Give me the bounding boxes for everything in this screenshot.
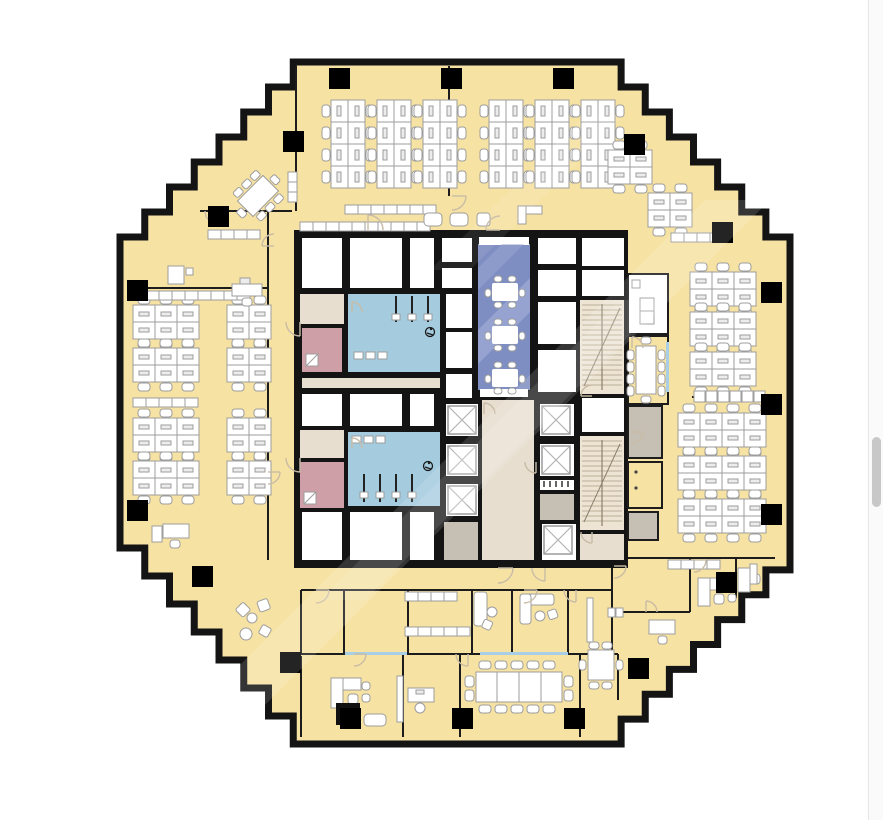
chair xyxy=(242,298,252,306)
armchair xyxy=(424,213,442,226)
monitor xyxy=(233,328,243,332)
conference-table xyxy=(492,369,518,387)
chair xyxy=(695,343,707,351)
chair xyxy=(348,694,358,704)
chair xyxy=(495,661,507,669)
chair xyxy=(564,676,573,687)
cabinet xyxy=(172,398,185,407)
cabinet xyxy=(300,222,313,231)
monitor xyxy=(161,425,171,429)
monitor xyxy=(255,355,265,359)
chair xyxy=(739,343,751,351)
monitor xyxy=(696,279,706,283)
chair xyxy=(683,490,695,498)
cabinet xyxy=(384,205,397,214)
monitor xyxy=(355,150,359,160)
chair xyxy=(232,383,244,391)
chair xyxy=(182,496,194,504)
round-table xyxy=(535,611,545,621)
chair xyxy=(526,105,534,117)
monitor xyxy=(139,328,149,332)
chair xyxy=(254,496,266,504)
structural-column xyxy=(452,708,473,729)
monitor xyxy=(513,150,517,160)
core-room xyxy=(538,270,576,296)
monitor xyxy=(416,690,424,694)
monitor xyxy=(750,420,760,424)
monitor xyxy=(696,295,706,299)
monitor xyxy=(255,312,265,316)
chair xyxy=(727,534,739,542)
monitor xyxy=(233,484,243,488)
structural-column xyxy=(441,68,462,89)
monitor xyxy=(728,522,738,526)
chair xyxy=(322,149,330,161)
scrollbar-track[interactable] xyxy=(868,0,883,820)
monitor xyxy=(696,375,706,379)
round-table xyxy=(487,607,497,617)
monitor xyxy=(401,150,405,160)
chair xyxy=(749,534,761,542)
monitor xyxy=(401,106,405,116)
core-room xyxy=(582,398,624,432)
toilet xyxy=(360,492,368,498)
monitor xyxy=(401,128,405,138)
cabinet xyxy=(221,230,234,239)
monitor xyxy=(706,506,716,510)
toilet xyxy=(376,492,384,498)
monitor xyxy=(559,106,563,116)
chair xyxy=(232,496,244,504)
cabinet xyxy=(198,291,211,300)
cabinet xyxy=(159,398,172,407)
core-room xyxy=(410,238,434,288)
core-corridor xyxy=(302,378,440,388)
chair xyxy=(480,171,488,183)
chair xyxy=(653,228,665,236)
monitor xyxy=(183,371,193,375)
monitor xyxy=(684,522,694,526)
core-room xyxy=(442,268,472,288)
monitor xyxy=(233,468,243,472)
accessible-icon xyxy=(430,328,432,330)
monitor xyxy=(706,463,716,467)
monitor xyxy=(355,172,359,182)
chair xyxy=(714,594,724,604)
cabinet xyxy=(313,222,326,231)
monitor xyxy=(728,463,738,467)
monitor xyxy=(750,522,760,526)
monitor xyxy=(495,128,499,138)
chair xyxy=(658,362,665,372)
monitor xyxy=(706,522,716,526)
monitor xyxy=(183,441,193,445)
cabinet xyxy=(211,291,224,300)
monitor xyxy=(429,106,433,116)
cabinet xyxy=(444,627,457,636)
sink xyxy=(376,436,385,443)
monitor xyxy=(495,150,499,160)
cabinet xyxy=(410,205,423,214)
conference-table xyxy=(492,283,518,301)
cabinet xyxy=(391,222,404,231)
chair xyxy=(138,383,150,391)
core-corridor xyxy=(300,294,344,324)
chair xyxy=(160,496,172,504)
monitor xyxy=(255,328,265,332)
monitor xyxy=(636,157,646,161)
monitor xyxy=(684,479,694,483)
monitor xyxy=(654,200,664,204)
cabinet xyxy=(431,592,444,601)
monitor xyxy=(355,128,359,138)
core-corridor xyxy=(580,534,624,560)
floor-plan-svg xyxy=(0,0,883,820)
sink xyxy=(354,352,363,359)
monitor xyxy=(139,484,149,488)
monitor xyxy=(429,172,433,182)
cabinet xyxy=(358,205,371,214)
chair xyxy=(749,404,761,412)
monitor xyxy=(337,172,341,182)
monitor xyxy=(684,463,694,467)
monitor xyxy=(447,128,451,138)
monitor xyxy=(255,425,265,429)
toilet xyxy=(392,314,400,320)
chair xyxy=(519,289,525,297)
core-room xyxy=(302,394,342,426)
chair xyxy=(508,302,516,308)
monitor xyxy=(559,128,563,138)
monitor xyxy=(587,106,591,116)
chair xyxy=(465,676,474,687)
cabinet xyxy=(371,205,384,214)
structural-column xyxy=(624,134,645,155)
chair xyxy=(368,171,376,183)
structural-column xyxy=(761,394,782,415)
chair xyxy=(675,184,687,192)
chair xyxy=(602,682,612,689)
core-corridor xyxy=(300,430,344,458)
monitor xyxy=(684,436,694,440)
chair xyxy=(717,303,729,311)
monitor xyxy=(541,106,545,116)
chair xyxy=(727,404,739,412)
cabinet xyxy=(707,560,720,569)
monitor xyxy=(233,312,243,316)
monitor xyxy=(696,319,706,323)
chair xyxy=(717,343,729,351)
scrollbar-thumb[interactable] xyxy=(872,437,881,507)
monitor xyxy=(183,425,193,429)
touchdown-table xyxy=(730,391,741,402)
chair xyxy=(138,452,150,460)
cabinet xyxy=(668,560,681,569)
chair xyxy=(589,682,599,689)
chair xyxy=(138,409,150,417)
monitor xyxy=(684,420,694,424)
monitor xyxy=(233,425,243,429)
chair xyxy=(527,661,539,669)
chair xyxy=(572,105,580,117)
chair xyxy=(616,660,623,670)
chair xyxy=(362,694,370,702)
chair xyxy=(485,332,491,340)
printer xyxy=(186,268,193,275)
cabinet xyxy=(365,222,378,231)
cabinet xyxy=(378,222,391,231)
chair xyxy=(480,105,488,117)
monitor xyxy=(233,441,243,445)
chair xyxy=(322,171,330,183)
monitor xyxy=(614,173,624,177)
monitor xyxy=(161,355,171,359)
monitor xyxy=(139,441,149,445)
monitor xyxy=(728,420,738,424)
monitor xyxy=(139,468,149,472)
monitor xyxy=(337,106,341,116)
core-room xyxy=(538,238,576,264)
chair xyxy=(728,594,736,602)
chair xyxy=(182,409,194,417)
cabinet xyxy=(418,627,431,636)
chair xyxy=(465,690,474,701)
toilet xyxy=(392,492,400,498)
cabinet xyxy=(457,627,470,636)
chair xyxy=(480,127,488,139)
monitor xyxy=(429,128,433,138)
chair xyxy=(519,332,525,340)
chair xyxy=(494,362,502,368)
cabinet xyxy=(288,172,297,182)
cabinet xyxy=(339,222,352,231)
structural-column xyxy=(208,206,229,227)
chair xyxy=(602,642,612,649)
conference-table xyxy=(492,326,518,344)
cabinet xyxy=(185,291,198,300)
core-room xyxy=(410,394,434,426)
monitor xyxy=(161,328,171,332)
chair xyxy=(170,540,180,548)
chair xyxy=(613,141,625,149)
core-utility xyxy=(540,494,574,520)
meeting-table xyxy=(636,346,656,394)
chair xyxy=(705,534,717,542)
monitor xyxy=(447,172,451,182)
monitor xyxy=(676,200,686,204)
structural-column xyxy=(716,572,737,593)
monitor xyxy=(139,312,149,316)
chair xyxy=(705,404,717,412)
chair xyxy=(160,409,172,417)
monitor xyxy=(654,216,664,220)
monitor xyxy=(139,355,149,359)
shelf xyxy=(397,676,403,722)
monitor xyxy=(614,157,624,161)
monitor xyxy=(255,371,265,375)
monitor xyxy=(337,128,341,138)
cabinet xyxy=(185,398,198,407)
monitor xyxy=(183,328,193,332)
cabinet xyxy=(352,222,365,231)
chair xyxy=(322,105,330,117)
shelf xyxy=(587,598,593,642)
chair xyxy=(485,289,491,297)
chair xyxy=(526,149,534,161)
chair xyxy=(232,339,244,347)
chair xyxy=(658,636,667,644)
touchdown-table xyxy=(694,391,705,402)
structural-column xyxy=(564,708,585,729)
sink xyxy=(366,352,375,359)
desk xyxy=(649,620,675,634)
monitor xyxy=(161,371,171,375)
chair xyxy=(653,184,665,192)
armchair xyxy=(450,213,468,226)
chair xyxy=(508,345,516,351)
monitor xyxy=(740,335,750,339)
chair xyxy=(362,682,370,690)
cabinet xyxy=(234,230,247,239)
cabinet xyxy=(288,192,297,202)
chair xyxy=(511,661,523,669)
sink xyxy=(378,352,387,359)
chair xyxy=(727,447,739,455)
monitor xyxy=(696,335,706,339)
structural-column xyxy=(283,131,304,152)
monitor xyxy=(740,319,750,323)
structural-column xyxy=(127,280,148,301)
monitor xyxy=(161,484,171,488)
chair xyxy=(368,105,376,117)
monitor xyxy=(676,216,686,220)
chair xyxy=(635,185,647,193)
monitor xyxy=(495,106,499,116)
monitor xyxy=(255,441,265,445)
touchdown-table xyxy=(706,391,717,402)
monitor xyxy=(636,173,646,177)
cabinet xyxy=(146,398,159,407)
monitor xyxy=(728,479,738,483)
chair xyxy=(508,276,516,282)
core-room xyxy=(302,512,342,560)
desk xyxy=(163,524,189,538)
chair xyxy=(485,375,491,383)
monitor xyxy=(383,106,387,116)
touchdown-table xyxy=(742,391,753,402)
touchdown-table xyxy=(718,391,729,402)
chair xyxy=(641,396,651,403)
cabinet xyxy=(397,205,410,214)
cabinet xyxy=(405,627,418,636)
core-utility xyxy=(444,522,478,560)
desk xyxy=(738,568,750,592)
structural-column xyxy=(340,708,361,729)
monitor xyxy=(429,150,433,160)
chair xyxy=(182,339,194,347)
monitor xyxy=(706,420,716,424)
core-room xyxy=(446,294,472,328)
chair xyxy=(658,374,665,384)
storage xyxy=(616,608,623,617)
monitor xyxy=(750,463,760,467)
chair xyxy=(494,276,502,282)
chair xyxy=(368,127,376,139)
monitor xyxy=(513,106,517,116)
monitor xyxy=(183,468,193,472)
monitor xyxy=(750,436,760,440)
monitor xyxy=(740,375,750,379)
monitor xyxy=(255,484,265,488)
chair xyxy=(495,705,507,713)
chair xyxy=(627,350,634,360)
cabinet xyxy=(247,230,260,239)
chair xyxy=(160,383,172,391)
cabinet xyxy=(288,182,297,192)
sink xyxy=(364,436,373,443)
monitor xyxy=(706,479,716,483)
monitor xyxy=(696,359,706,363)
cabinet xyxy=(444,592,457,601)
chair xyxy=(232,452,244,460)
core-room xyxy=(350,238,402,288)
chair xyxy=(414,171,422,183)
monitor xyxy=(728,506,738,510)
monitor xyxy=(541,128,545,138)
chair xyxy=(717,263,729,271)
chair xyxy=(160,452,172,460)
chair xyxy=(494,319,502,325)
chair xyxy=(543,661,555,669)
chair xyxy=(543,705,555,713)
monitor xyxy=(684,506,694,510)
cabinet xyxy=(418,592,431,601)
chair xyxy=(705,490,717,498)
chair xyxy=(572,171,580,183)
monitor xyxy=(718,319,728,323)
monitor xyxy=(161,441,171,445)
glass-wall xyxy=(480,652,568,655)
monitor xyxy=(447,150,451,160)
structural-column xyxy=(329,68,350,89)
chair xyxy=(232,409,244,417)
chair xyxy=(627,362,634,372)
structural-column xyxy=(628,658,649,679)
chair xyxy=(579,660,586,670)
chair xyxy=(613,185,625,193)
cabinet xyxy=(326,222,339,231)
monitor xyxy=(740,359,750,363)
chair xyxy=(658,386,665,396)
monitor xyxy=(718,335,728,339)
chair xyxy=(527,705,539,713)
copier xyxy=(168,266,184,284)
monitor xyxy=(233,371,243,375)
chair xyxy=(458,149,466,161)
monitor xyxy=(750,479,760,483)
chair xyxy=(254,383,266,391)
monitor xyxy=(139,371,149,375)
sofa-L xyxy=(520,594,531,624)
cabinet xyxy=(431,627,444,636)
chair xyxy=(658,350,665,360)
monitor xyxy=(401,172,405,182)
monitor xyxy=(139,425,149,429)
chair xyxy=(494,345,502,351)
storage xyxy=(608,608,615,617)
chair xyxy=(589,642,599,649)
chair xyxy=(138,339,150,347)
